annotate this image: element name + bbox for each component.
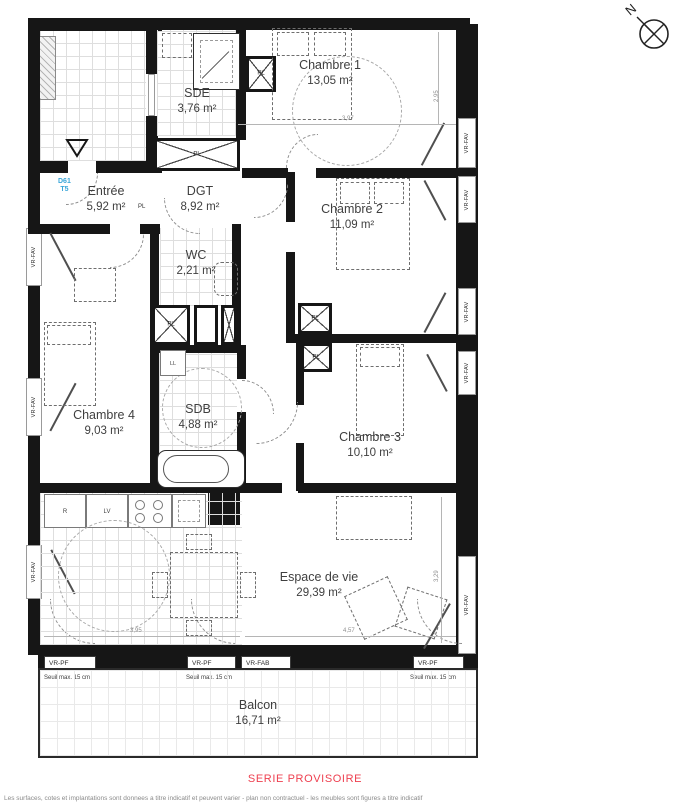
wall — [286, 334, 456, 343]
hob-burner — [153, 500, 163, 510]
room-label-chambre2: Chambre 2 11,09 m² — [290, 202, 414, 232]
wall — [316, 168, 458, 178]
floorplan-page: { "compass": { "label": "N" }, "unit_tag… — [0, 0, 699, 800]
window-swing — [424, 292, 446, 332]
dimension-label: 3,95 — [130, 628, 142, 634]
unit-tag: D61 T5 — [58, 178, 71, 194]
dimension-label: 3,97 — [342, 116, 354, 122]
hob-burner — [153, 513, 163, 523]
dimension-line — [238, 124, 456, 125]
closet-pl: PL — [300, 343, 332, 372]
sideboard — [336, 496, 412, 540]
room-label-chambre4: Chambre 4 9,03 m² — [48, 408, 160, 438]
room-label-wc: WC 2,21 m² — [158, 248, 234, 278]
door-arc-chambre4 — [110, 234, 144, 268]
technical-duct — [221, 305, 237, 345]
pillow — [340, 182, 370, 204]
pillow — [47, 325, 91, 345]
utility-box — [194, 305, 218, 345]
wall — [286, 252, 295, 338]
washbasin — [162, 33, 192, 58]
dining-table — [170, 552, 238, 618]
wall — [242, 168, 288, 178]
window-swing — [49, 233, 76, 281]
hob-burner — [135, 513, 145, 523]
window-vr-fav: VR-FAV — [458, 288, 476, 335]
room-label-balcon: Balcon 16,71 m² — [188, 698, 328, 728]
pillow — [360, 347, 400, 367]
chair — [152, 572, 168, 598]
wall — [237, 345, 246, 379]
fridge: R — [44, 494, 86, 528]
window-swing — [421, 122, 445, 165]
dimension-label: 4,57 — [343, 628, 355, 634]
washing-machine: LL — [160, 350, 186, 376]
window-vr-fav: VR-FAV — [458, 118, 476, 168]
room-label-dgt: DGT 8,92 m² — [160, 184, 240, 214]
closet-pl: PL — [298, 303, 332, 334]
room-name: Balcon — [188, 698, 328, 714]
sink-basin — [178, 500, 200, 522]
wall — [28, 18, 162, 31]
unit-id: D61 — [58, 178, 71, 186]
hob-burner — [135, 500, 145, 510]
window-vr-fav: VR-FAV — [458, 176, 476, 223]
desk — [74, 268, 116, 302]
pillow — [314, 32, 346, 56]
wall — [96, 161, 162, 173]
hob — [128, 494, 172, 528]
dimension-line — [438, 32, 439, 124]
window-swing — [424, 180, 446, 220]
wall — [28, 161, 68, 173]
dimension-line — [44, 636, 240, 637]
unit-type: T5 — [58, 186, 71, 194]
chair — [186, 620, 212, 636]
pillow — [277, 32, 309, 56]
window-vr-fav: VR-FAV — [458, 351, 476, 395]
chair — [186, 534, 212, 550]
bathtub-inner — [163, 455, 229, 483]
clipped-disclaimer: Les surfaces, cotes et implantations son… — [4, 795, 699, 802]
door-arc-chambre2 — [254, 184, 288, 218]
dimension-label: 3,29 — [434, 570, 440, 582]
closet-pl: PL — [154, 138, 240, 171]
window-vr-fav: VR-FAV — [26, 378, 42, 436]
entree-pl-label: PL — [138, 204, 145, 210]
stairs-direction-icon — [65, 138, 89, 158]
wall — [28, 18, 40, 174]
window-vr-fav: VR-FAV — [26, 228, 42, 286]
room-label-chambre3: Chambre 3 10,10 m² — [310, 430, 430, 460]
room-label-sdb: SDB 4,88 m² — [158, 402, 238, 432]
dimension-line — [245, 636, 456, 637]
room-label-sde: SDE 3,76 m² — [158, 86, 236, 116]
pillow — [374, 182, 404, 204]
wall — [298, 483, 456, 493]
room-area: 16,71 m² — [188, 714, 328, 728]
dimension-label: 2,95 — [434, 90, 440, 102]
provisional-stamp: SERIE PROVISOIRE — [220, 773, 390, 785]
wall — [28, 224, 110, 234]
room-label-espace: Espace de vie 29,39 m² — [252, 570, 386, 600]
wall — [296, 343, 304, 405]
door-arc-chambre3 — [256, 402, 298, 444]
window-swing — [426, 354, 447, 392]
core-window — [148, 74, 155, 116]
compass: N — [620, 2, 682, 62]
room-label-chambre1: Chambre 1 13,05 m² — [268, 58, 392, 88]
compass-north-label: N — [622, 2, 639, 18]
closet-pl: PL — [152, 305, 190, 345]
dimension-line — [441, 497, 442, 643]
